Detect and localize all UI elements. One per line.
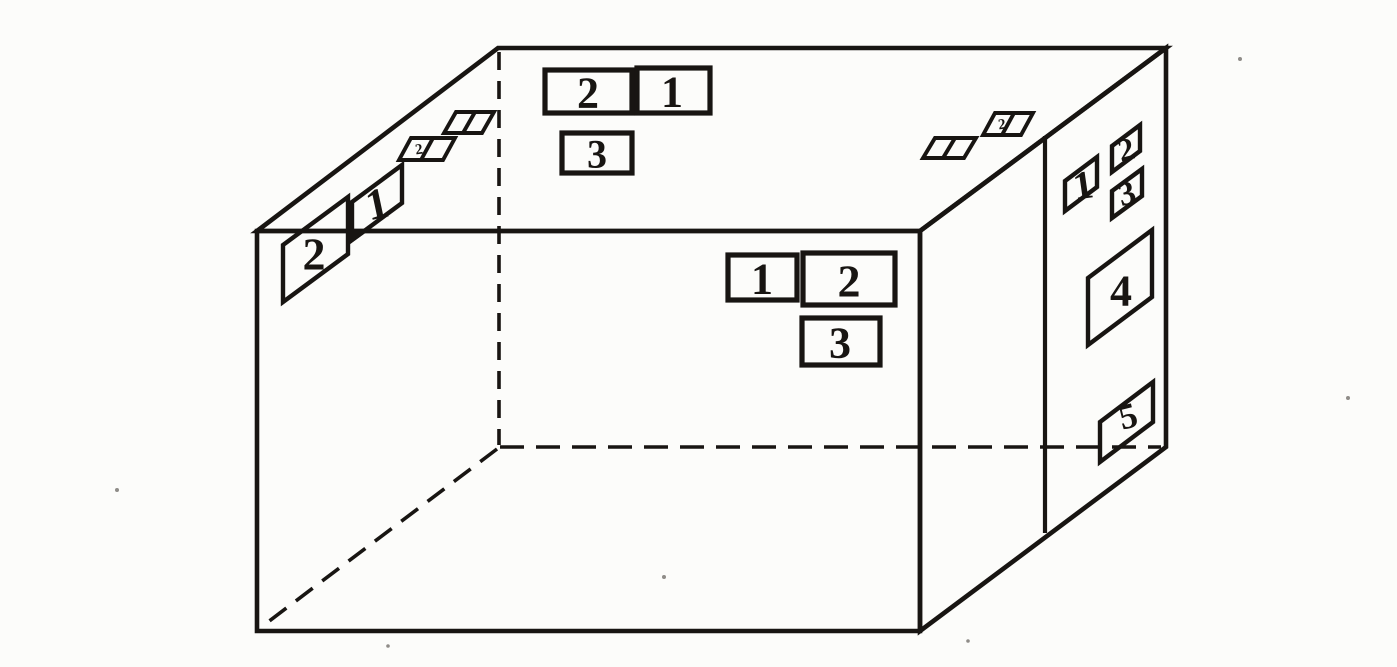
label-number: 1 — [751, 255, 773, 304]
label-number: 3 — [829, 319, 851, 368]
front-face-label-1: 1 — [728, 255, 797, 304]
scanned-figure-page: 2 1 3 2 1 2 — [0, 0, 1397, 667]
mini-mark-divider — [463, 112, 475, 133]
scan-speck — [115, 488, 119, 492]
top-face-labels: 2 1 3 — [545, 68, 710, 177]
mini-mark-right-lower — [923, 138, 976, 158]
left-edge-label-2: 2 — [283, 197, 348, 302]
front-face-label-2: 2 — [803, 253, 895, 307]
right-face-label-4: 4 — [1088, 230, 1152, 345]
right-face-label-5: 5 — [1100, 382, 1153, 462]
hidden-edges — [260, 52, 1161, 628]
front-face-label-3: 3 — [802, 318, 880, 368]
mini-mark-divider — [943, 138, 955, 158]
label-number: 2 — [838, 256, 861, 307]
scan-speck — [1238, 57, 1242, 61]
mini-mark-right-upper: 2 — [983, 113, 1033, 135]
label-number: 1 — [661, 68, 683, 117]
front-face-labels: 1 2 3 — [728, 253, 895, 368]
scan-speck — [1346, 396, 1350, 400]
mini-mark-number: 2 — [997, 117, 1007, 134]
right-face-label-2: 2 — [1112, 125, 1140, 172]
label-number: 1 — [1070, 161, 1096, 208]
box-front-face — [257, 231, 920, 631]
left-edge-labels: 2 1 — [283, 165, 402, 302]
scan-speck — [966, 639, 970, 643]
mini-mark-number: 2 — [414, 142, 424, 159]
label-number: 2 — [303, 229, 326, 280]
carton-perspective-diagram: 2 1 3 2 1 2 — [0, 0, 1397, 667]
right-face-labels: 1 2 3 4 5 — [1065, 125, 1153, 462]
top-face-label-2: 2 — [545, 69, 632, 118]
label-number: 4 — [1110, 267, 1132, 316]
top-face-mini-marks: 2 2 — [399, 112, 1033, 160]
top-face-label-1: 1 — [637, 68, 710, 117]
mini-mark-left-upper — [444, 112, 494, 133]
scan-speck — [386, 644, 390, 648]
scan-speck — [662, 575, 666, 579]
box-outline — [257, 48, 1166, 631]
label-number: 1 — [361, 178, 393, 231]
label-number: 3 — [587, 132, 607, 177]
label-number: 3 — [1114, 174, 1139, 214]
right-face-label-1: 1 — [1065, 157, 1097, 211]
label-number: 2 — [1114, 130, 1138, 169]
hidden-edge-bottom-left-diagonal — [260, 449, 497, 628]
right-face-label-3: 3 — [1112, 169, 1142, 218]
label-number: 2 — [577, 69, 599, 118]
label-number: 5 — [1114, 394, 1141, 437]
top-face-label-3: 3 — [562, 132, 632, 177]
mini-mark-left-lower: 2 — [399, 138, 455, 160]
